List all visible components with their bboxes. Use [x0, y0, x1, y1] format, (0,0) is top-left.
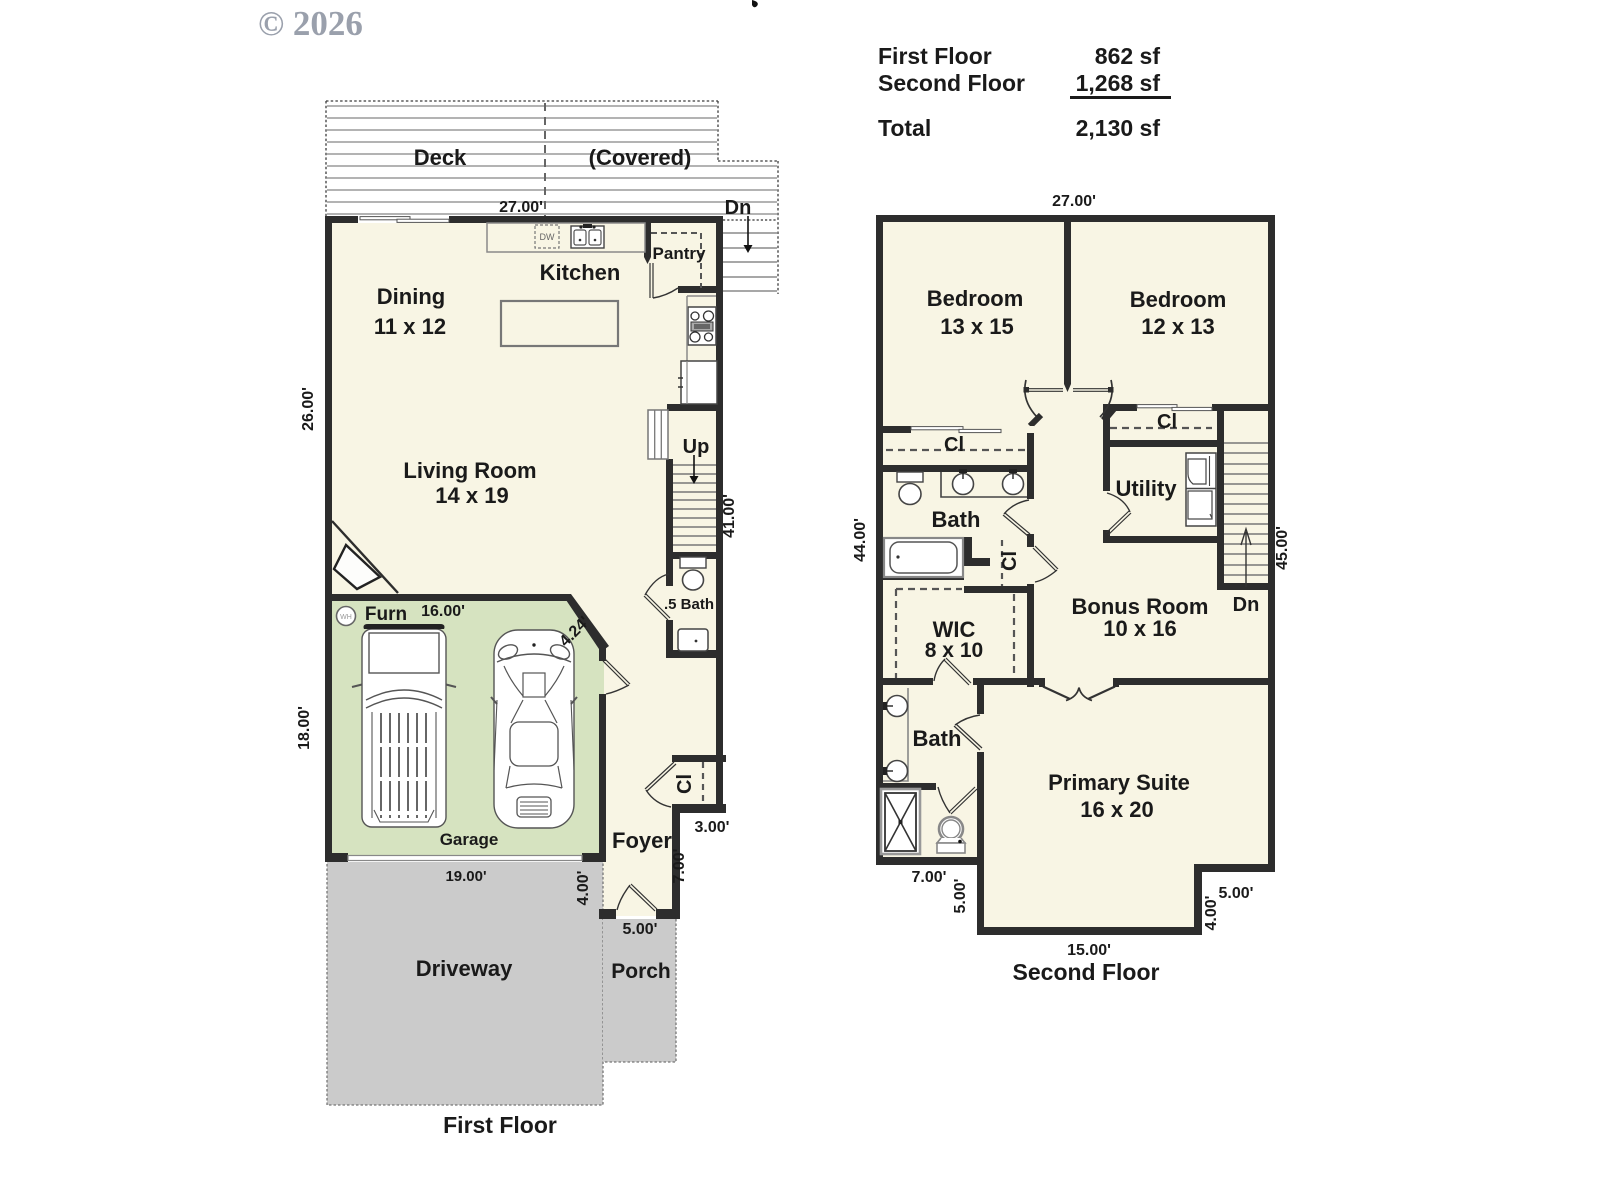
svg-text:13 x 15: 13 x 15: [940, 314, 1013, 339]
svg-text:10 x 16: 10 x 16: [1103, 616, 1176, 641]
svg-text:27.00': 27.00': [1052, 193, 1096, 210]
svg-text:Utility: Utility: [1115, 476, 1177, 501]
svg-text:19.00': 19.00': [445, 868, 486, 885]
svg-text:© 2026: © 2026: [258, 4, 363, 43]
svg-text:16 x 20: 16 x 20: [1080, 797, 1153, 822]
svg-text:1,268 sf: 1,268 sf: [1076, 70, 1161, 96]
svg-text:5.00': 5.00': [952, 879, 969, 914]
svg-text:Bedroom: Bedroom: [1130, 287, 1227, 312]
svg-text:Porch: Porch: [611, 960, 671, 983]
svg-text:Bedroom: Bedroom: [927, 286, 1024, 311]
svg-text:Primary Suite: Primary Suite: [1048, 770, 1190, 795]
svg-text:11 x 12: 11 x 12: [374, 314, 446, 339]
svg-text:5.00': 5.00': [1219, 885, 1254, 902]
svg-text:Dining: Dining: [377, 284, 445, 309]
svg-text:45.00': 45.00': [1274, 526, 1291, 570]
svg-text:3.00': 3.00': [695, 819, 730, 836]
svg-text:Up: Up: [683, 436, 710, 458]
svg-text:Second Floor: Second Floor: [878, 70, 1025, 96]
svg-text:41.00': 41.00': [721, 494, 738, 538]
svg-text:862 sf: 862 sf: [1095, 43, 1161, 69]
svg-text:Total: Total: [878, 115, 931, 141]
svg-text:7.00': 7.00': [912, 869, 947, 886]
svg-text:Garage: Garage: [440, 830, 499, 849]
svg-text:7.00': 7.00': [671, 849, 688, 884]
svg-text:Pantry: Pantry: [653, 244, 706, 263]
svg-text:Living Room: Living Room: [403, 458, 536, 483]
svg-text:8 x 10: 8 x 10: [925, 639, 983, 662]
svg-text:4.00': 4.00': [1203, 896, 1220, 931]
svg-text:15.00': 15.00': [1067, 942, 1111, 959]
svg-text:Bath: Bath: [932, 507, 981, 532]
svg-text:Deck: Deck: [414, 145, 467, 170]
svg-text:Dn: Dn: [725, 197, 752, 219]
svg-text:Kitchen: Kitchen: [540, 260, 621, 285]
svg-text:44.00': 44.00': [852, 518, 869, 562]
svg-text:26.00': 26.00': [300, 387, 317, 431]
svg-text:Cl: Cl: [1157, 411, 1177, 433]
svg-text:Cl: Cl: [999, 551, 1021, 571]
svg-text:14 x 19: 14 x 19: [435, 483, 508, 508]
svg-text:Second Floor: Second Floor: [1013, 959, 1160, 985]
svg-text:Foyer: Foyer: [612, 828, 672, 853]
svg-text:.5 Bath: .5 Bath: [664, 596, 714, 613]
svg-text:WH: WH: [340, 614, 352, 621]
svg-text:First Floor: First Floor: [878, 43, 992, 69]
svg-text:18.00': 18.00': [296, 706, 313, 750]
svg-text:16.00': 16.00': [421, 603, 465, 620]
svg-text:First Floor: First Floor: [443, 1112, 557, 1138]
svg-text:5.00': 5.00': [623, 921, 658, 938]
svg-text:4.00': 4.00': [575, 871, 592, 906]
svg-text:Furn: Furn: [365, 604, 407, 625]
svg-text:12 x 13: 12 x 13: [1141, 314, 1214, 339]
svg-text:DW: DW: [540, 232, 555, 242]
svg-text:27.00': 27.00': [499, 199, 543, 216]
svg-text:Cl: Cl: [674, 774, 696, 794]
svg-text:2,130 sf: 2,130 sf: [1076, 115, 1161, 141]
svg-text:Bath: Bath: [913, 726, 962, 751]
svg-text:Dn: Dn: [1233, 594, 1260, 616]
svg-text:Cl: Cl: [944, 434, 964, 456]
svg-text:(Covered): (Covered): [589, 145, 692, 170]
svg-text:Driveway: Driveway: [416, 956, 513, 981]
